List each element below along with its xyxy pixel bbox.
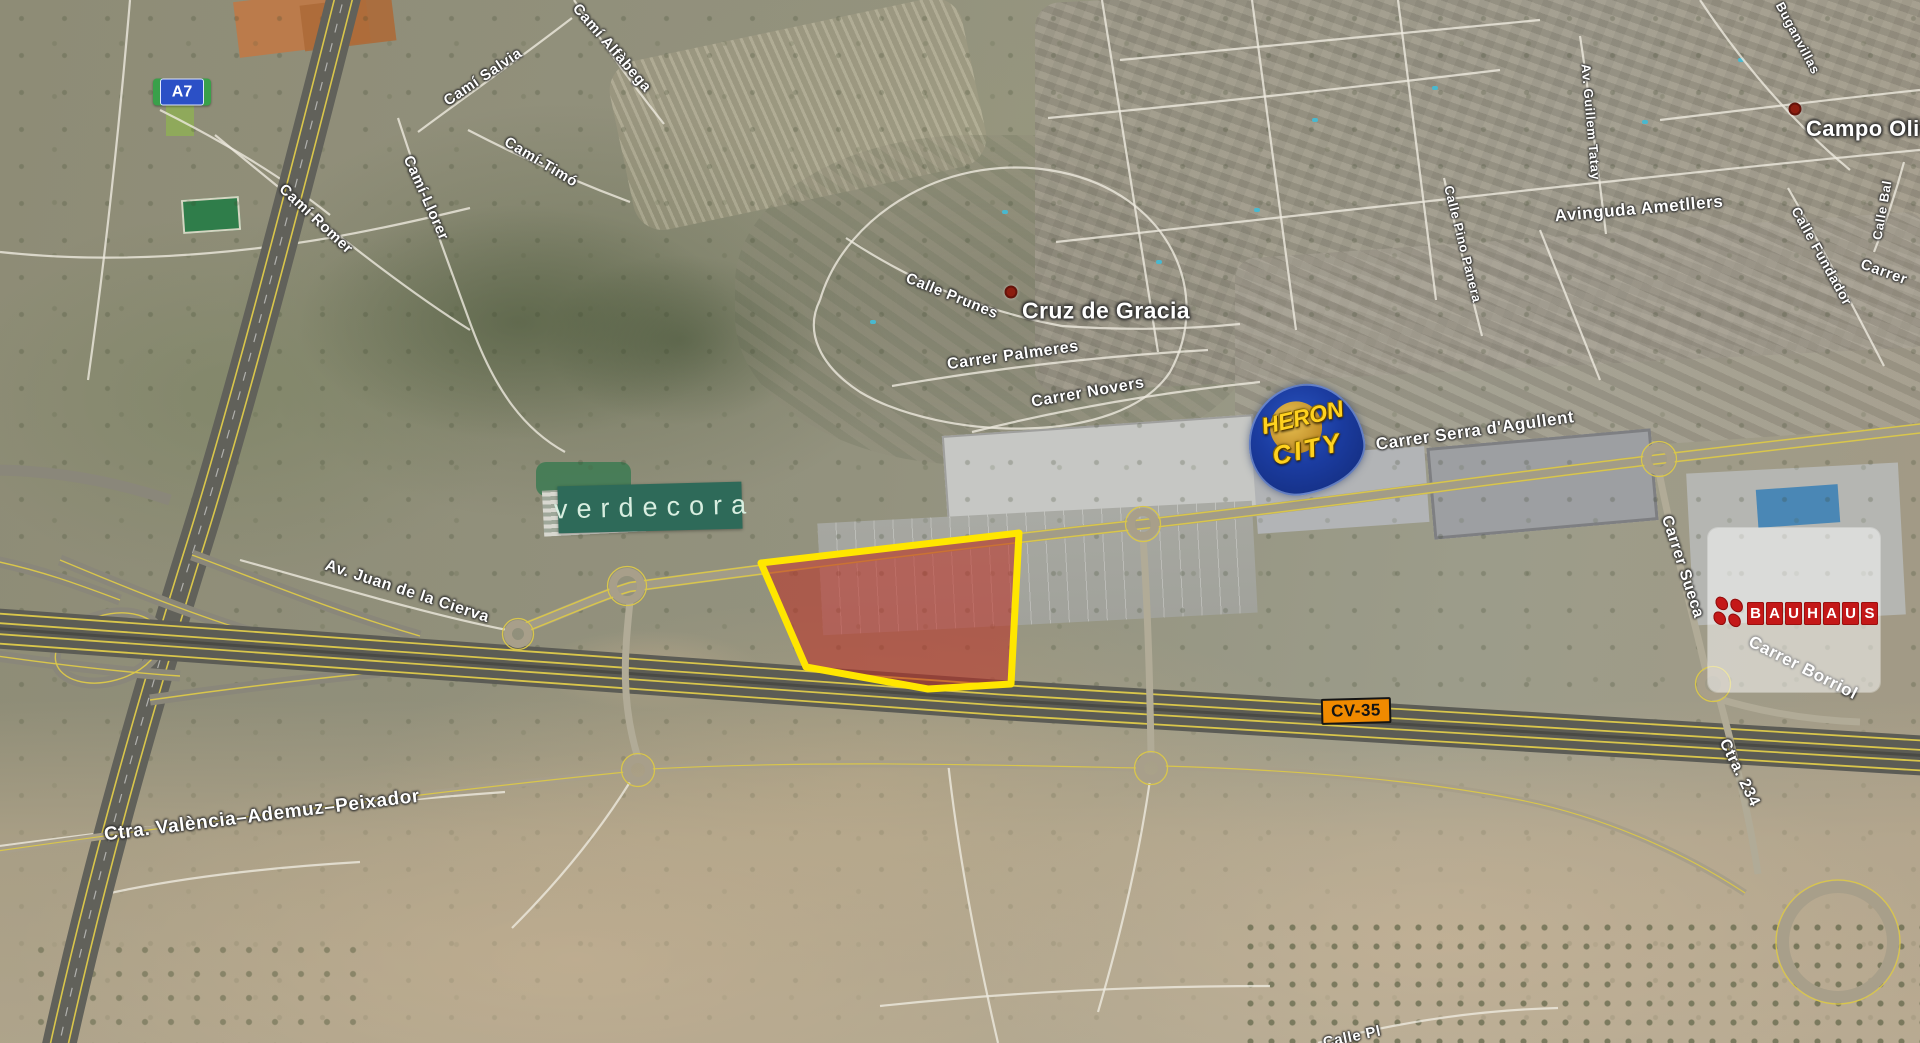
bauhaus-letters: BAUHAUS [1747, 602, 1878, 625]
bauhaus-logo[interactable]: BAUHAUS [1714, 598, 1878, 628]
bauhaus-letter-tile: B [1747, 602, 1764, 625]
verdecora-store-logo[interactable]: verdecora [557, 482, 742, 534]
highlighted-parcel[interactable] [761, 533, 1019, 689]
bauhaus-clover-icon [1712, 596, 1746, 630]
bauhaus-letter-tile: U [1785, 602, 1802, 625]
route-shield-cv35: CV-35 [1321, 697, 1391, 725]
bauhaus-letter-tile: H [1804, 602, 1821, 625]
heron-city-logo[interactable]: HERON CITY [1240, 376, 1372, 503]
verdecora-logo-text: verdecora [545, 489, 756, 525]
bauhaus-letter-tile: S [1861, 602, 1878, 625]
bauhaus-letter-tile: A [1823, 602, 1840, 625]
a7-motorway [49, 0, 356, 1043]
frontage-road [0, 764, 1745, 893]
roads-layer [0, 0, 1920, 1043]
bauhaus-letter-tile: A [1766, 602, 1783, 625]
route-shield-a7: A7 [153, 79, 211, 106]
satellite-map[interactable]: Cruz de GraciaCampo Oliv Camí RomerCamí-… [0, 0, 1920, 1043]
bauhaus-letter-tile: U [1842, 602, 1859, 625]
route-shield-a7-label: A7 [160, 79, 204, 106]
